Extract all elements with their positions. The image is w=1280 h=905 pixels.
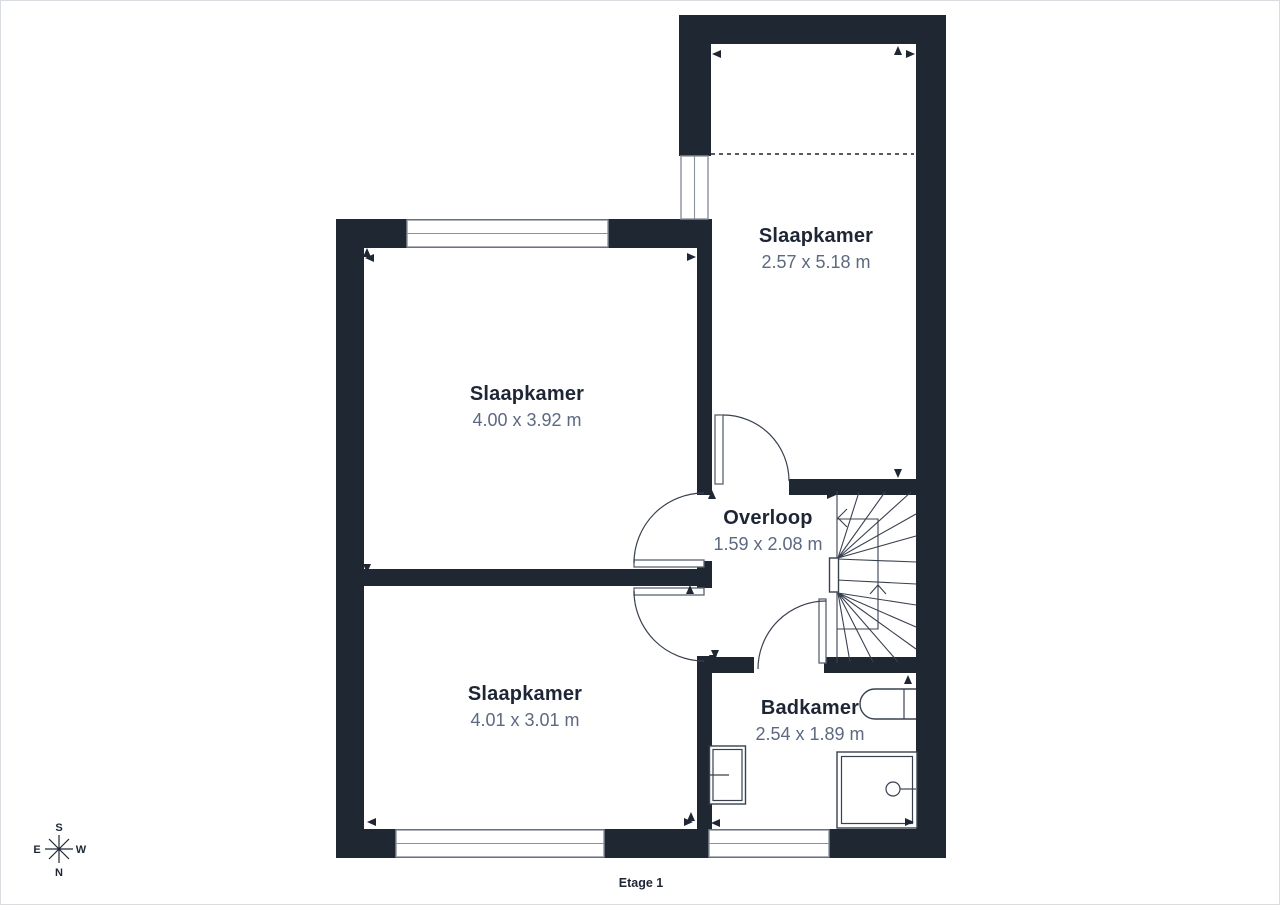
door-bedroom-sw — [634, 588, 704, 661]
window-south-bedroom — [396, 830, 604, 857]
dimension-arrows — [363, 46, 915, 827]
sink-fixture — [709, 746, 746, 804]
stair-newel — [830, 558, 839, 592]
shower-fixture — [837, 752, 917, 828]
bathroom-fixtures — [709, 689, 917, 828]
window-south-bathroom — [709, 830, 829, 857]
compass-icon: S N E W — [33, 822, 86, 879]
window-west-vertical — [681, 156, 708, 219]
compass-east-label: E — [33, 844, 40, 856]
doors — [634, 415, 826, 669]
compass-south-label: S — [55, 822, 62, 834]
door-bedroom-nw — [634, 493, 704, 567]
window-north — [407, 220, 608, 247]
walls — [336, 15, 946, 858]
door-bedroom-ne — [715, 415, 789, 484]
compass-west-label: W — [76, 844, 87, 856]
floor-label: Etage 1 — [619, 876, 663, 890]
toilet-fixture — [860, 689, 916, 719]
windows — [396, 156, 829, 857]
compass-north-label: N — [55, 867, 63, 879]
staircase — [830, 491, 917, 663]
door-bathroom — [758, 599, 826, 669]
floor-plan-page: S N E W Slaapkamer 2.57 x 5.18 m Slaapka… — [0, 0, 1280, 905]
floor-plan-drawing: S N E W — [1, 1, 1280, 905]
